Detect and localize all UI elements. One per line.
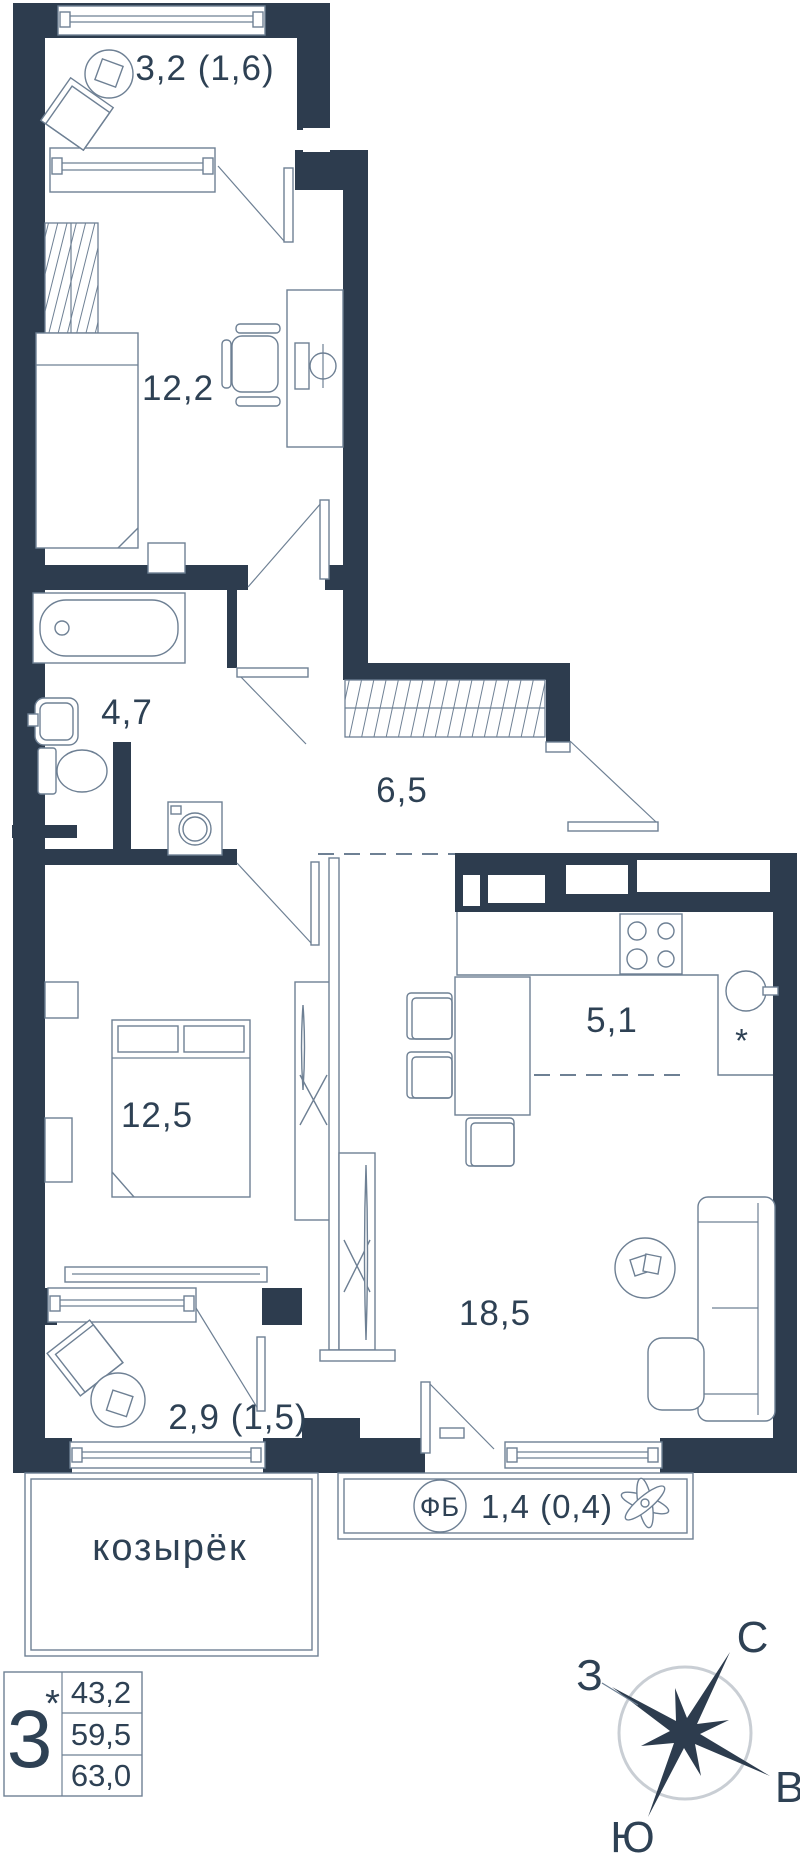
canopy-label: козырёк xyxy=(92,1527,247,1569)
window-loggia-bottom xyxy=(70,1442,265,1468)
partition xyxy=(329,858,339,1350)
fridge-asterisk: * xyxy=(735,1022,749,1059)
toilet xyxy=(38,748,107,794)
door-bedroom xyxy=(237,862,319,945)
bedroom-wardrobe xyxy=(295,982,332,1220)
compass-south: Ю xyxy=(610,1813,655,1855)
room-label-french-balcony: 1,4 (0,4) xyxy=(481,1488,613,1525)
kitchen-sink xyxy=(726,971,778,1011)
compass-north: С xyxy=(737,1613,770,1662)
window-living xyxy=(505,1442,662,1468)
office-desk xyxy=(287,290,343,447)
compass-rose: С З В Ю xyxy=(576,1613,800,1855)
door-french-balcony xyxy=(421,1382,494,1453)
fridge-mark: * xyxy=(735,1022,749,1059)
door-loggia-top xyxy=(218,166,293,242)
bedroom-radiator xyxy=(65,1267,267,1282)
monitor xyxy=(295,343,309,389)
french-balcony-strip: ФБ 1,4 (0,4) xyxy=(338,1473,693,1539)
window-loggia-top xyxy=(58,6,265,35)
compass-west: З xyxy=(576,1651,604,1700)
compass-star xyxy=(612,1652,770,1817)
floor-plan: * козырёк ФБ 1,4 (0,4) 3,2 (1,6) 12,2 4,… xyxy=(0,0,800,1855)
walls xyxy=(12,3,797,1473)
sink xyxy=(28,698,78,745)
ottoman xyxy=(648,1338,704,1410)
room-label-living: 18,5 xyxy=(459,1294,531,1333)
window-bedroom xyxy=(48,1288,196,1322)
bathtub xyxy=(33,593,185,663)
door-loggia-bottom xyxy=(196,1308,265,1411)
legend-area-total: 63,0 xyxy=(71,1758,131,1793)
canopy: козырёк xyxy=(25,1473,318,1656)
furniture: * xyxy=(28,50,778,1427)
room-label-bathroom: 4,7 xyxy=(101,693,153,732)
washing-machine xyxy=(168,802,222,855)
door-office xyxy=(248,500,329,587)
legend-area-living: 43,2 xyxy=(71,1675,131,1710)
tv-console xyxy=(320,1350,395,1361)
room-label-loggia-bottom: 2,9 (1,5) xyxy=(168,1398,307,1437)
door-entrance xyxy=(546,741,658,831)
bedroom-nightstand xyxy=(45,982,78,1018)
stove xyxy=(620,914,682,974)
sofa xyxy=(648,1197,775,1421)
closet-hall xyxy=(345,680,545,737)
room-label-kitchen: 5,1 xyxy=(586,1001,638,1040)
room-label-loggia-top: 3,2 (1,6) xyxy=(135,49,274,88)
coffee-table xyxy=(615,1238,675,1298)
legend-area-apartment: 59,5 xyxy=(71,1717,131,1752)
wardrobe-office xyxy=(45,223,98,333)
office-nightstand xyxy=(148,543,185,573)
room-label-bedroom: 12,5 xyxy=(121,1096,193,1135)
room-label-office: 12,2 xyxy=(142,369,214,408)
legend-table: 3 * 43,2 59,5 63,0 xyxy=(4,1672,142,1796)
fb-badge: ФБ xyxy=(420,1492,460,1522)
door-bathroom xyxy=(237,668,308,744)
bedroom-bench xyxy=(45,1118,72,1182)
floor-plan-page: * козырёк ФБ 1,4 (0,4) 3,2 (1,6) 12,2 4,… xyxy=(0,0,800,1855)
compass-east: В xyxy=(775,1763,800,1812)
legend-note-mark: * xyxy=(45,1683,61,1725)
office-chair xyxy=(222,324,280,406)
dining-table xyxy=(455,977,530,1115)
window-office xyxy=(50,148,215,192)
room-label-hall: 6,5 xyxy=(376,771,428,810)
